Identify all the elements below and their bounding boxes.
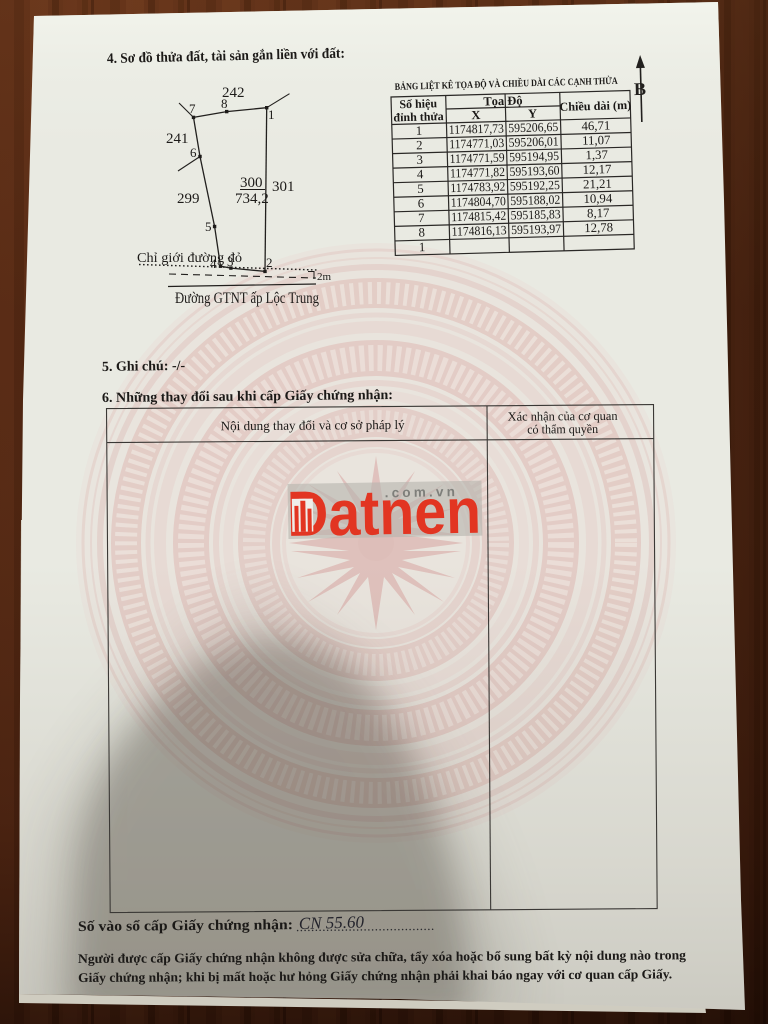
svg-text:4: 4 — [417, 167, 424, 181]
svg-text:1174771,82: 1174771,82 — [450, 165, 505, 181]
svg-text:X: X — [471, 108, 480, 122]
svg-text:10,94: 10,94 — [583, 191, 613, 206]
svg-text:241: 241 — [166, 131, 189, 147]
svg-text:5: 5 — [205, 219, 212, 234]
svg-text:3: 3 — [227, 254, 234, 269]
svg-text:595206,65: 595206,65 — [508, 120, 558, 135]
svg-text:1: 1 — [268, 107, 275, 122]
svg-text:Chiều dài (m): Chiều dài (m) — [559, 98, 631, 114]
svg-text:có thẩm quyền: có thẩm quyền — [527, 422, 599, 437]
svg-text:4: 4 — [210, 256, 217, 271]
svg-text:7: 7 — [418, 211, 425, 225]
svg-text:595194,95: 595194,95 — [509, 149, 559, 164]
svg-text:2: 2 — [266, 255, 273, 270]
svg-text:1174804,70: 1174804,70 — [451, 194, 506, 210]
svg-text:1174816,13: 1174816,13 — [451, 223, 506, 239]
svg-text:Tọa Độ: Tọa Độ — [483, 93, 523, 108]
svg-text:12,17: 12,17 — [582, 162, 612, 177]
svg-text:8,17: 8,17 — [587, 206, 610, 221]
svg-text:595193,97: 595193,97 — [511, 222, 562, 237]
svg-text:5. Ghi chú: -/-: 5. Ghi chú: -/- — [102, 359, 186, 375]
svg-text:6: 6 — [418, 196, 425, 210]
svg-text:595185,83: 595185,83 — [511, 207, 561, 222]
svg-text:301: 301 — [272, 179, 295, 195]
svg-text:5: 5 — [417, 182, 424, 196]
svg-text:12,78: 12,78 — [584, 220, 613, 235]
svg-text:3: 3 — [416, 153, 423, 167]
svg-text:21,21: 21,21 — [583, 177, 612, 192]
svg-text:46,71: 46,71 — [581, 119, 610, 134]
svg-text:1: 1 — [419, 240, 426, 254]
svg-text:7: 7 — [189, 101, 196, 116]
svg-text:B: B — [634, 79, 647, 99]
svg-text:734,2: 734,2 — [235, 191, 269, 207]
svg-text:595192,25: 595192,25 — [510, 178, 560, 193]
svg-text:CN 55.60: CN 55.60 — [299, 912, 365, 933]
svg-text:Datnen: Datnen — [286, 475, 481, 550]
svg-text:Đường GTNT ấp Lộc Trung: Đường GTNT ấp Lộc Trung — [175, 290, 319, 307]
svg-text:300: 300 — [240, 175, 263, 191]
svg-text:1174817,73: 1174817,73 — [449, 121, 504, 137]
svg-text:6. Những thay đổi sau khi cấp: 6. Những thay đổi sau khi cấp Giấy chứng… — [102, 388, 393, 406]
svg-text:8: 8 — [418, 226, 425, 240]
svg-text:299: 299 — [177, 191, 200, 207]
svg-text:1174783,92: 1174783,92 — [450, 180, 505, 196]
svg-text:595193,60: 595193,60 — [509, 164, 559, 179]
svg-text:Số vào sổ cấp Giấy chứng nhận:: Số vào sổ cấp Giấy chứng nhận: — [78, 917, 293, 935]
svg-text:1174771,03: 1174771,03 — [449, 136, 504, 152]
svg-text:11,07: 11,07 — [582, 133, 611, 148]
svg-text:Nội dung thay đổi và cơ sở phá: Nội dung thay đổi và cơ sở pháp lý — [221, 417, 406, 433]
svg-text:8: 8 — [221, 96, 228, 111]
svg-text:đỉnh thửa: đỉnh thửa — [393, 109, 444, 124]
svg-text:2: 2 — [416, 138, 423, 152]
svg-text:6: 6 — [190, 145, 197, 160]
svg-text:1: 1 — [416, 124, 423, 138]
svg-text:Y: Y — [528, 107, 537, 121]
svg-text:1,37: 1,37 — [585, 148, 608, 163]
svg-text:1174771,59: 1174771,59 — [449, 151, 504, 167]
svg-text:1174815,42: 1174815,42 — [451, 209, 506, 225]
svg-text:595206,01: 595206,01 — [509, 134, 559, 149]
svg-text:595188,02: 595188,02 — [510, 193, 560, 208]
svg-text:2m: 2m — [317, 271, 332, 283]
